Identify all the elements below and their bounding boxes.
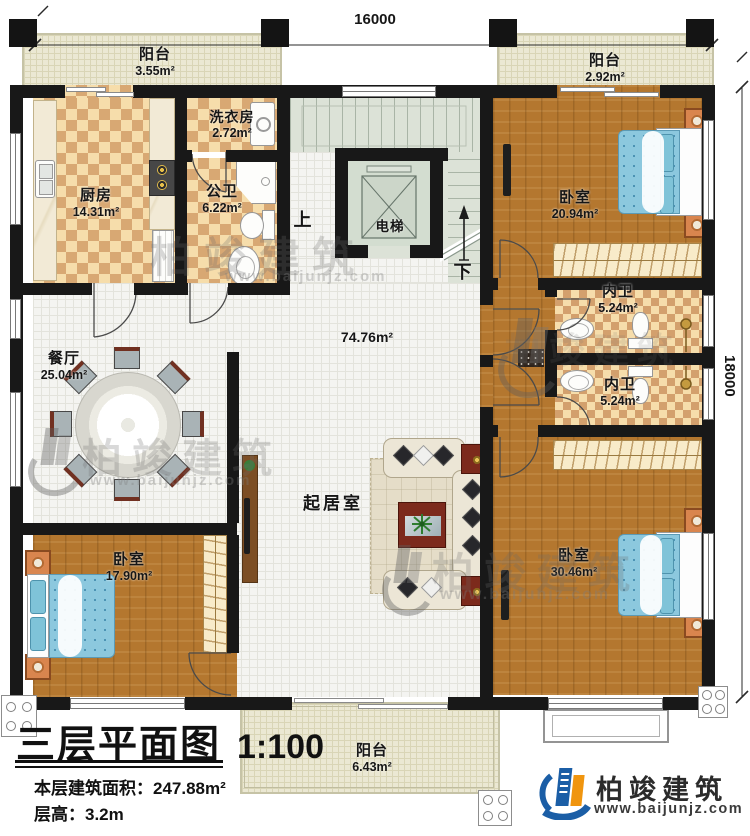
window [10,133,21,225]
room-label-balcony-tr: 阳台 2.92m² [585,53,625,84]
ensuite-toilet-top [632,312,649,338]
wall [227,535,239,653]
label-stairs-up: 上 [294,210,313,230]
wall [552,353,702,365]
room-area: 2.92m² [585,70,625,84]
corridor-door-threshold-1 [480,305,493,355]
sink-inner [568,323,589,338]
room-area: 2.72m² [210,126,255,140]
elevator-wall [430,148,443,258]
room-area: 74.76m² [341,330,393,346]
wall [10,523,237,535]
window [548,698,663,709]
dining-chair [182,411,204,437]
pillar [261,19,289,47]
room-name: 阳台 [135,47,175,64]
wall [545,290,557,297]
wall [480,407,493,697]
bay-window-inner [552,715,660,737]
room-area: 25.04m² [41,368,88,382]
brand-logo-icon [536,762,592,820]
room-name: 洗衣房 [210,110,255,126]
room-area: 5.24m² [600,394,640,408]
brand-url: www.baijunjz.com [594,801,743,817]
wall [133,85,290,98]
room-label-balcony-bottom: 阳台 6.43m² [352,743,392,774]
tv-bedroom-tr [503,144,511,196]
window [703,120,714,220]
wall [277,98,290,295]
window [10,392,21,487]
room-name: 卧室 [106,552,153,569]
wall [448,697,548,710]
room-label-balcony-tl: 阳台 3.55m² [135,47,175,78]
sink-inner [568,375,589,390]
room-name: 卧室 [551,548,598,565]
dining-chair [114,347,140,369]
room-label-bedroom-tr: 卧室 20.94m² [552,190,599,221]
wall [226,150,277,162]
title-underline-thin [15,766,223,768]
wall [480,98,493,305]
blanket-fold [642,131,664,213]
pillar [686,19,714,47]
wall [480,355,493,367]
room-name: 厨房 [73,188,120,205]
sliding-door-panel [294,698,384,703]
tv-bedroom-br [501,570,509,620]
ensuite-sink-top [560,318,594,340]
window [703,533,714,620]
room-area: 14.31m² [73,205,120,219]
room-area: 20.94m² [552,207,599,221]
washer-drum [256,117,271,132]
pillar [489,19,517,47]
corridor-door-threshold-2 [480,367,493,407]
wall [480,85,557,98]
room-label-laundry: 洗衣房 2.72m² [210,110,255,140]
shower-drain [261,177,270,186]
floor-area-line: 本层建筑面积：247.88m² [34,774,226,799]
elevator-text: 电梯 [376,219,405,234]
pillow [30,580,46,614]
floor-area-value: 247.88m² [153,779,226,798]
room-label-ensuite-bottom: 内卫 5.24m² [600,377,640,408]
wall [185,697,292,710]
floor-plan-page: 阳台 3.55m² 阳台 2.92m² 厨房 14.31m² 洗衣房 2.72m… [0,0,750,836]
wardrobe-bl [203,535,227,653]
floor-height-label: 层高： [34,805,85,824]
down-text: 下 [454,262,473,282]
window [70,698,185,709]
kitchen-sink [35,160,55,198]
sliding-door-panel [604,92,659,97]
room-area: 5.24m² [598,301,638,315]
kitchen-stove [149,160,175,196]
dimension-top: 16000 [354,11,396,28]
sliding-door-panel [358,704,448,709]
ensuite-toilet-tank-top [628,338,653,349]
stove-burner-2 [157,180,167,190]
coffee-table [398,502,446,548]
room-label-bedroom-br: 卧室 30.46m² [551,548,598,579]
window [703,295,714,347]
elevator-wall [335,245,368,258]
pillow [660,578,674,614]
coffee-table-glass [405,516,441,536]
room-name: 卧室 [552,190,599,207]
room-label-bedroom-bl: 卧室 17.90m² [106,552,153,583]
room-area: 3.55m² [135,64,175,78]
dimension-right: 18000 [721,355,738,397]
stair-upper-flight [290,98,480,152]
wardrobe-tr [553,243,702,277]
room-area: 30.46m² [551,565,598,579]
corridor-cabinet [518,349,544,367]
sink-inner [236,256,255,279]
room-name: 内卫 [598,284,638,301]
bay-window [543,709,669,743]
column-symbol [478,790,512,826]
room-name: 餐厅 [41,351,88,368]
wall [493,278,498,290]
wall [538,425,715,437]
window [10,299,21,339]
dining-chair [50,411,72,437]
wall [10,283,92,295]
elevator-wall [410,245,443,258]
column-symbol [698,686,728,718]
room-name: 公卫 [202,184,242,201]
stove-burner-1 [157,165,167,175]
plant-console [244,460,255,471]
wall [227,352,239,523]
window [703,368,714,420]
room-name: 内卫 [600,377,640,394]
pillow [660,538,674,574]
wardrobe-br [553,440,702,470]
tv-living [244,498,250,554]
sink-basin-1 [39,164,53,179]
room-label-living: 起居室 [303,494,363,513]
pedestal-sink-public [228,246,260,286]
blanket-fold [58,575,82,657]
room-area: 17.90m² [106,569,153,583]
toilet-bowl-public [240,212,264,239]
ensuite-sink-bottom [560,370,594,392]
room-area: 6.22m² [202,201,242,215]
window [342,86,436,97]
nightstand [25,550,51,576]
wall [493,425,498,437]
room-label-dining: 餐厅 25.04m² [41,351,88,382]
sliding-door-panel [96,92,134,97]
pillar [9,19,37,47]
kitchen-cabinet [152,230,174,282]
wall [134,283,188,295]
floor-height-line: 层高：3.2m [34,800,124,825]
plan-scale: 1:100 [237,728,324,767]
up-text: 上 [294,210,313,230]
floor-area-label: 本层建筑面积： [34,779,153,798]
room-name: 阳台 [352,743,392,760]
blanket-fold [640,535,662,615]
dining-set [75,372,179,476]
room-name: 起居室 [303,494,363,513]
pillow [30,617,46,651]
room-area: 6.43m² [352,760,392,774]
dining-chair [114,479,140,501]
room-name: 阳台 [585,53,625,70]
label-stairs-down: 下 [454,262,473,282]
room-label-public-bath: 公卫 6.22m² [202,184,242,215]
sink-basin-2 [39,180,53,195]
wall [187,150,192,162]
room-label-kitchen: 厨房 14.31m² [73,188,120,219]
floor-height-value: 3.2m [85,805,124,824]
title-underline-thick [15,760,223,763]
elevator-wall [335,148,348,258]
room-label-hall-area: 74.76m² [341,330,393,346]
label-elevator: 电梯 [376,219,405,234]
wall [175,98,187,283]
room-label-ensuite-top: 内卫 5.24m² [598,284,638,315]
